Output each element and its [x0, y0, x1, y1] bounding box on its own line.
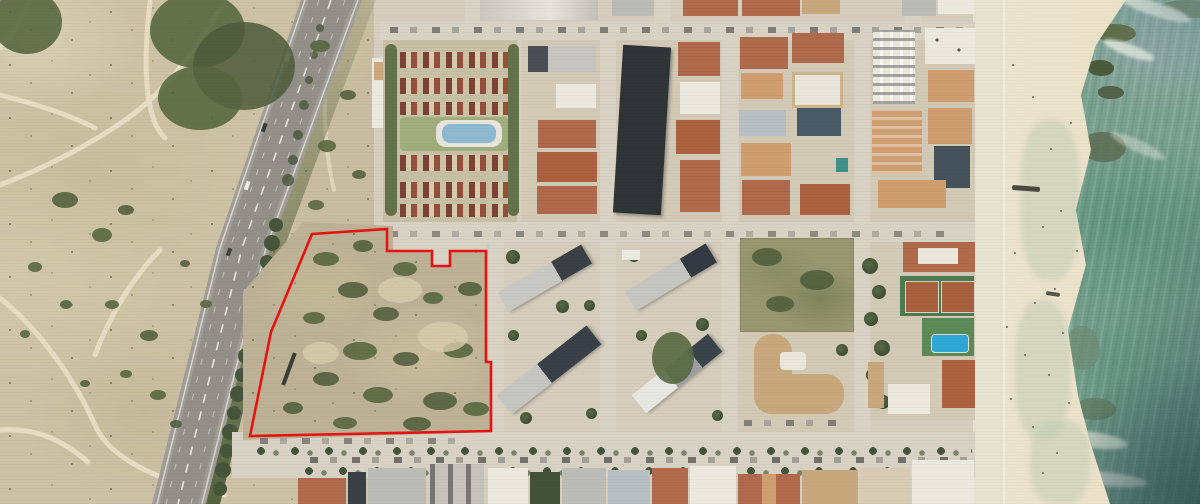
parcel-annotation-layer [0, 0, 1200, 504]
aerial-photo [0, 0, 1200, 504]
parcel-outline-polygon [250, 229, 491, 436]
